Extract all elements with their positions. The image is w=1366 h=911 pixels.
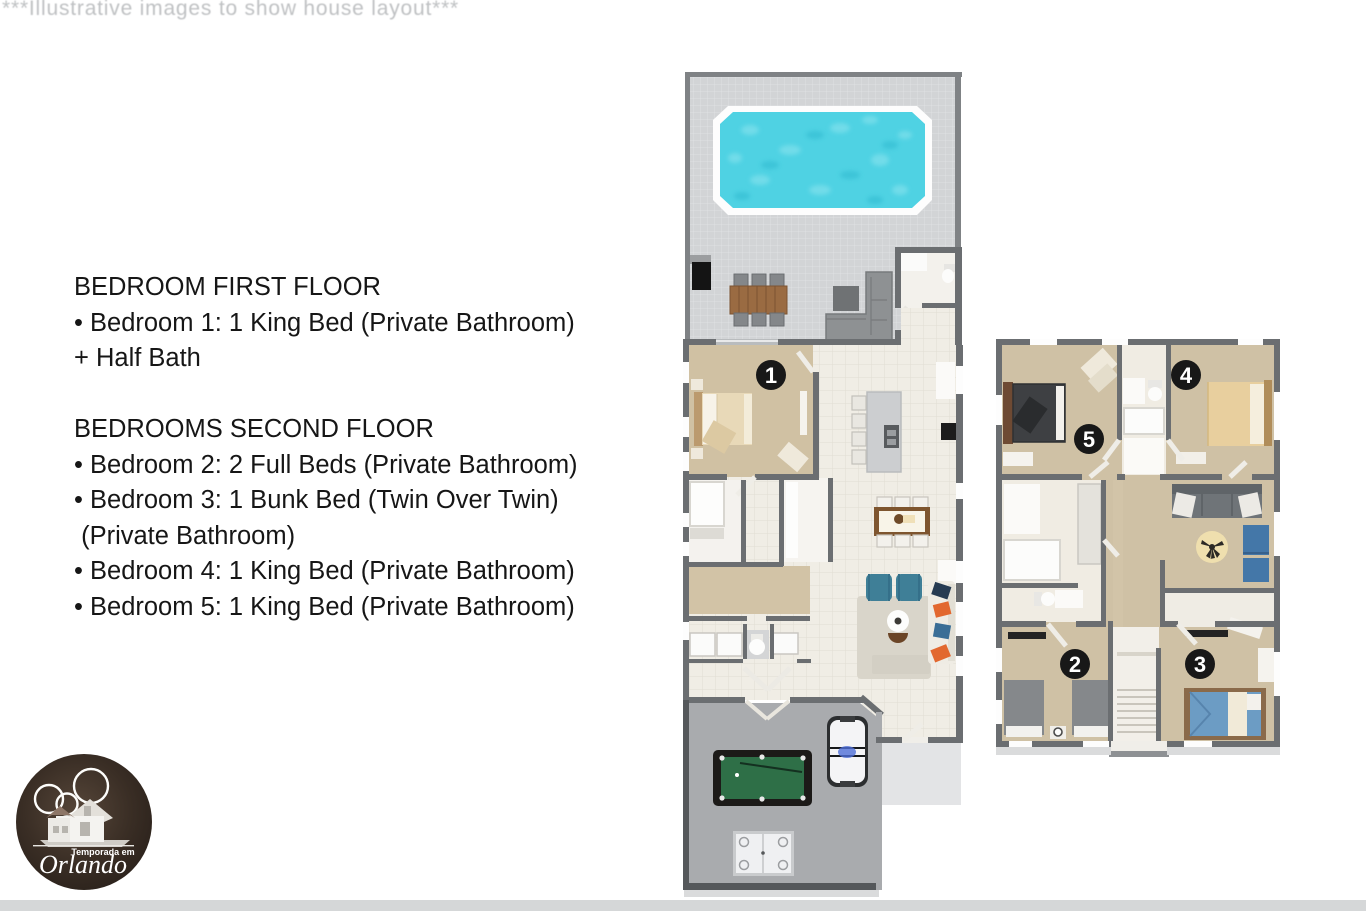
svg-text:4: 4 [1180, 363, 1193, 388]
svg-text:2: 2 [1069, 652, 1081, 677]
svg-text:3: 3 [1194, 652, 1206, 677]
svg-text:1: 1 [765, 363, 777, 388]
svg-text:Orlando: Orlando [39, 850, 127, 879]
svg-text:5: 5 [1083, 427, 1095, 452]
